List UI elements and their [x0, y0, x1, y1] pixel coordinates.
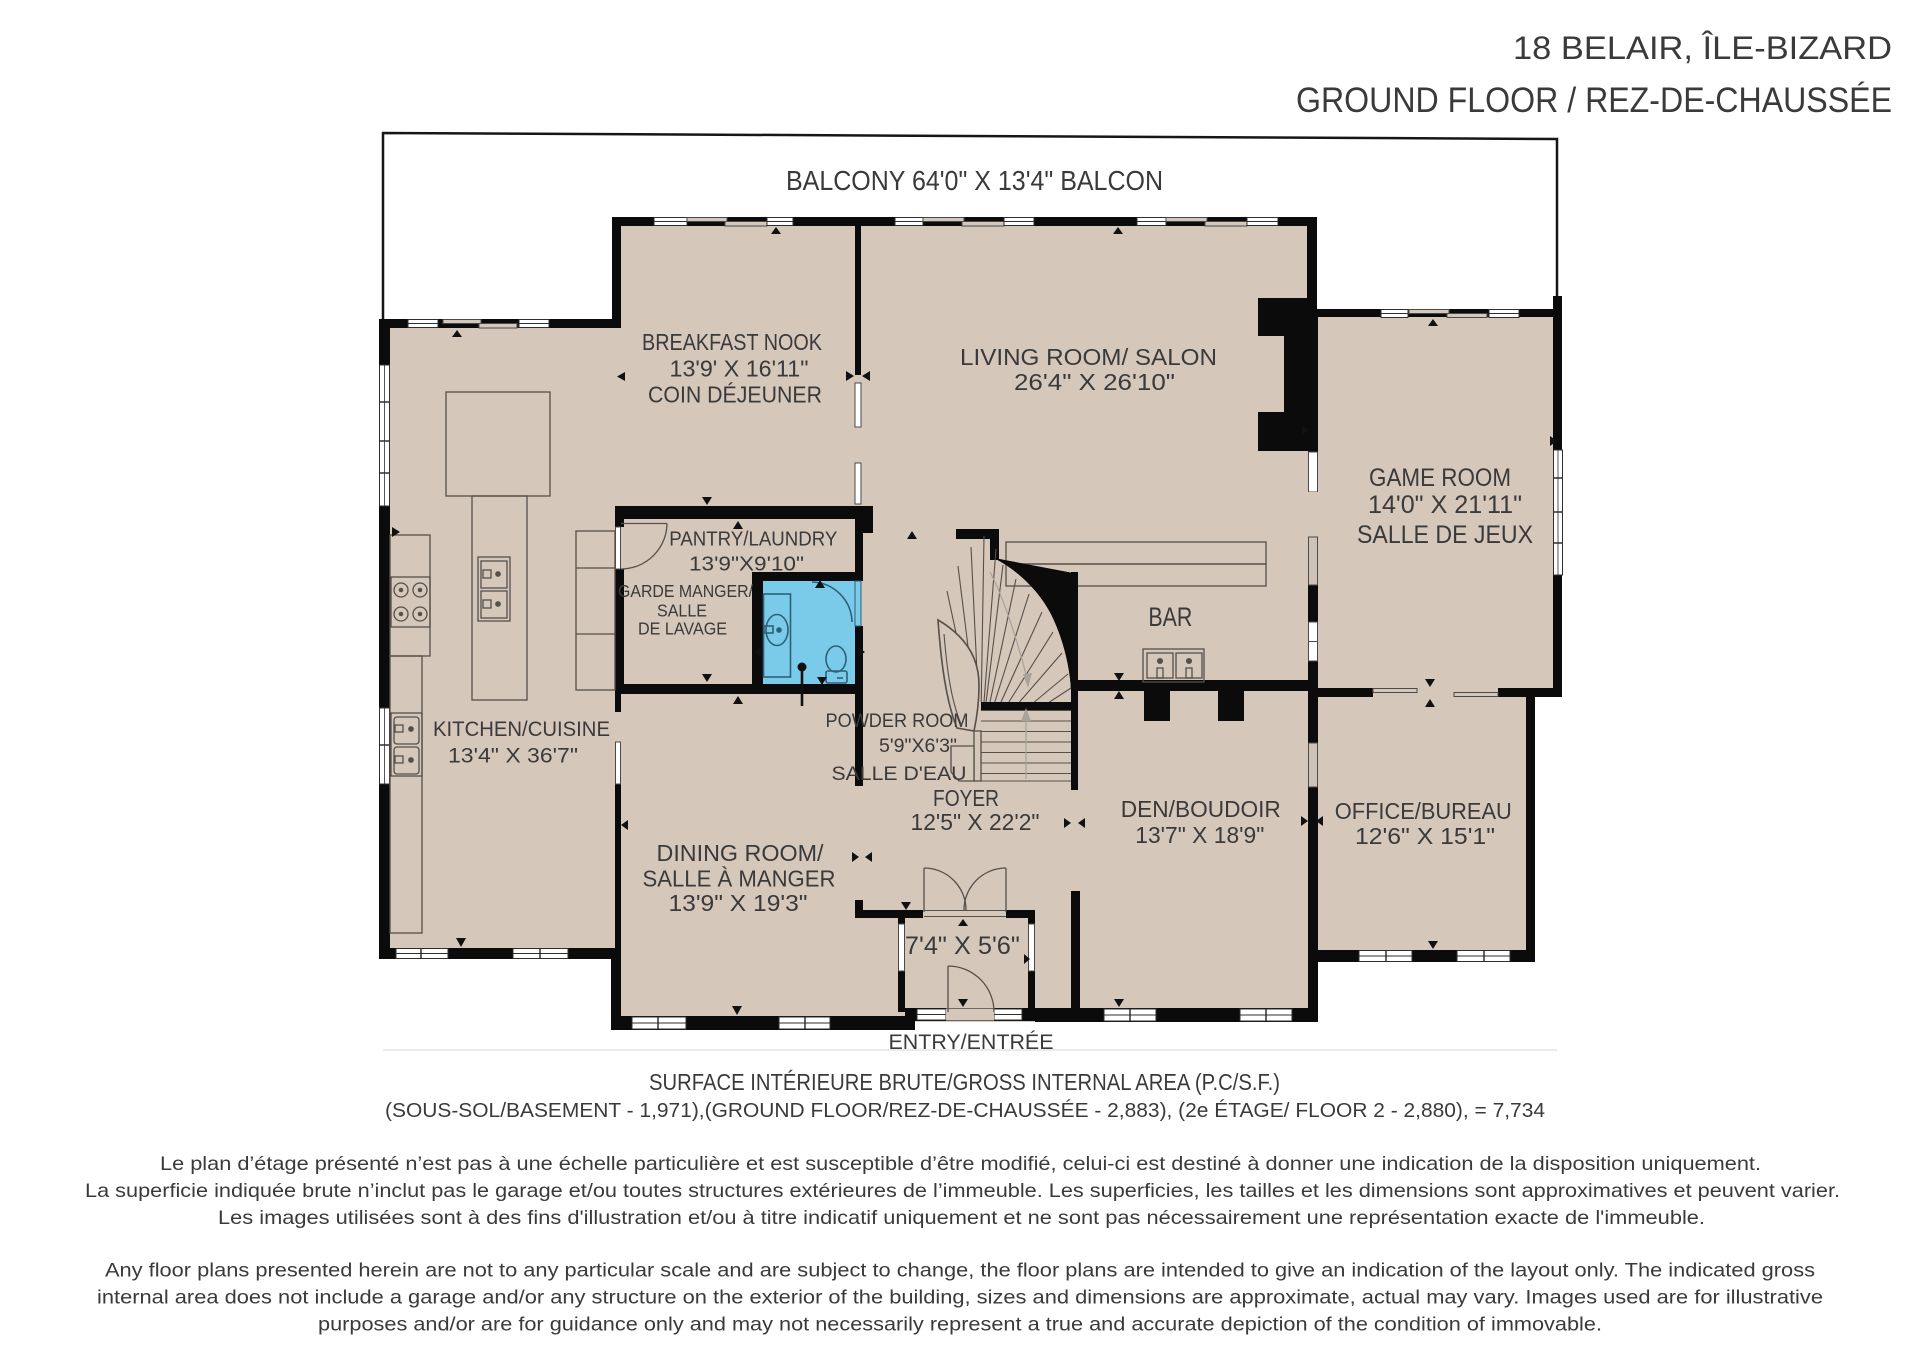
- svg-text:FOYER: FOYER: [933, 785, 999, 811]
- svg-text:SALLE DE JEUX: SALLE DE JEUX: [1357, 521, 1533, 549]
- svg-text:14'0" X 21'11": 14'0" X 21'11": [1368, 491, 1522, 519]
- svg-text:SALLE D'EAU: SALLE D'EAU: [832, 764, 967, 785]
- svg-text:LIVING ROOM/ SALON: LIVING ROOM/ SALON: [960, 344, 1217, 370]
- svg-text:DE LAVAGE: DE LAVAGE: [638, 619, 727, 639]
- svg-text:POWDER ROOM: POWDER ROOM: [826, 711, 969, 732]
- svg-text:La superficie indiquée brute n: La superficie indiquée brute n’inclut pa…: [85, 1180, 1840, 1202]
- svg-text:Any floor plans presented here: Any floor plans presented herein are not…: [105, 1260, 1815, 1282]
- svg-text:13'9' X 16'11": 13'9' X 16'11": [670, 356, 809, 382]
- svg-text:13'7" X 18'9": 13'7" X 18'9": [1135, 822, 1264, 848]
- svg-text:SALLE À MANGER: SALLE À MANGER: [643, 866, 836, 892]
- svg-text:7'4" X 5'6": 7'4" X 5'6": [905, 932, 1020, 960]
- svg-text:KITCHEN/CUISINE: KITCHEN/CUISINE: [433, 718, 610, 741]
- svg-text:OFFICE/BUREAU: OFFICE/BUREAU: [1335, 798, 1512, 824]
- svg-text:(SOUS-SOL/BASEMENT - 1,971),(G: (SOUS-SOL/BASEMENT - 1,971),(GROUND FLOO…: [385, 1099, 1545, 1122]
- svg-text:PANTRY/LAUNDRY: PANTRY/LAUNDRY: [669, 528, 837, 551]
- svg-text:GARDE MANGER/: GARDE MANGER/: [618, 581, 753, 601]
- svg-text:BAR: BAR: [1148, 602, 1192, 632]
- svg-text:GROUND FLOOR / REZ-DE-CHAUSSÉE: GROUND FLOOR / REZ-DE-CHAUSSÉE: [1296, 81, 1892, 120]
- svg-text:Les images utilisées sont à de: Les images utilisées sont à des fins d'i…: [218, 1207, 1705, 1229]
- svg-text:SALLE: SALLE: [657, 601, 707, 621]
- svg-text:BREAKFAST NOOK: BREAKFAST NOOK: [642, 329, 823, 355]
- svg-text:12'5" X 22'2": 12'5" X 22'2": [911, 809, 1040, 835]
- svg-text:ENTRY/ENTRÉE: ENTRY/ENTRÉE: [889, 1029, 1054, 1054]
- svg-text:18 BELAIR, ÎLE-BIZARD: 18 BELAIR, ÎLE-BIZARD: [1513, 30, 1892, 66]
- svg-text:BALCONY 64'0" X 13'4" BALCON: BALCONY 64'0" X 13'4" BALCON: [786, 165, 1163, 196]
- svg-text:13'9"X9'10": 13'9"X9'10": [689, 553, 804, 576]
- svg-text:13'9" X 19'3": 13'9" X 19'3": [669, 890, 808, 916]
- svg-text:GAME ROOM: GAME ROOM: [1369, 464, 1511, 492]
- svg-text:26'4" X 26'10": 26'4" X 26'10": [1014, 369, 1175, 395]
- svg-text:COIN DÉJEUNER: COIN DÉJEUNER: [648, 382, 822, 408]
- svg-text:5'9"X6'3": 5'9"X6'3": [879, 736, 957, 757]
- svg-text:13'4" X 36'7": 13'4" X 36'7": [448, 745, 578, 768]
- svg-text:SURFACE INTÉRIEURE BRUTE/GROSS: SURFACE INTÉRIEURE BRUTE/GROSS INTERNAL …: [649, 1069, 1280, 1095]
- svg-text:purposes and/or are for guidan: purposes and/or are for guidance only an…: [318, 1314, 1602, 1336]
- svg-text:12'6" X 15'1": 12'6" X 15'1": [1355, 823, 1495, 849]
- svg-text:DINING ROOM/: DINING ROOM/: [657, 840, 825, 866]
- svg-text:DEN/BOUDOIR: DEN/BOUDOIR: [1121, 796, 1281, 822]
- svg-text:internal area does not include: internal area does not include a garage …: [97, 1287, 1823, 1309]
- svg-text:Le plan d’étage présenté n’est: Le plan d’étage présenté n’est pas à une…: [160, 1153, 1761, 1175]
